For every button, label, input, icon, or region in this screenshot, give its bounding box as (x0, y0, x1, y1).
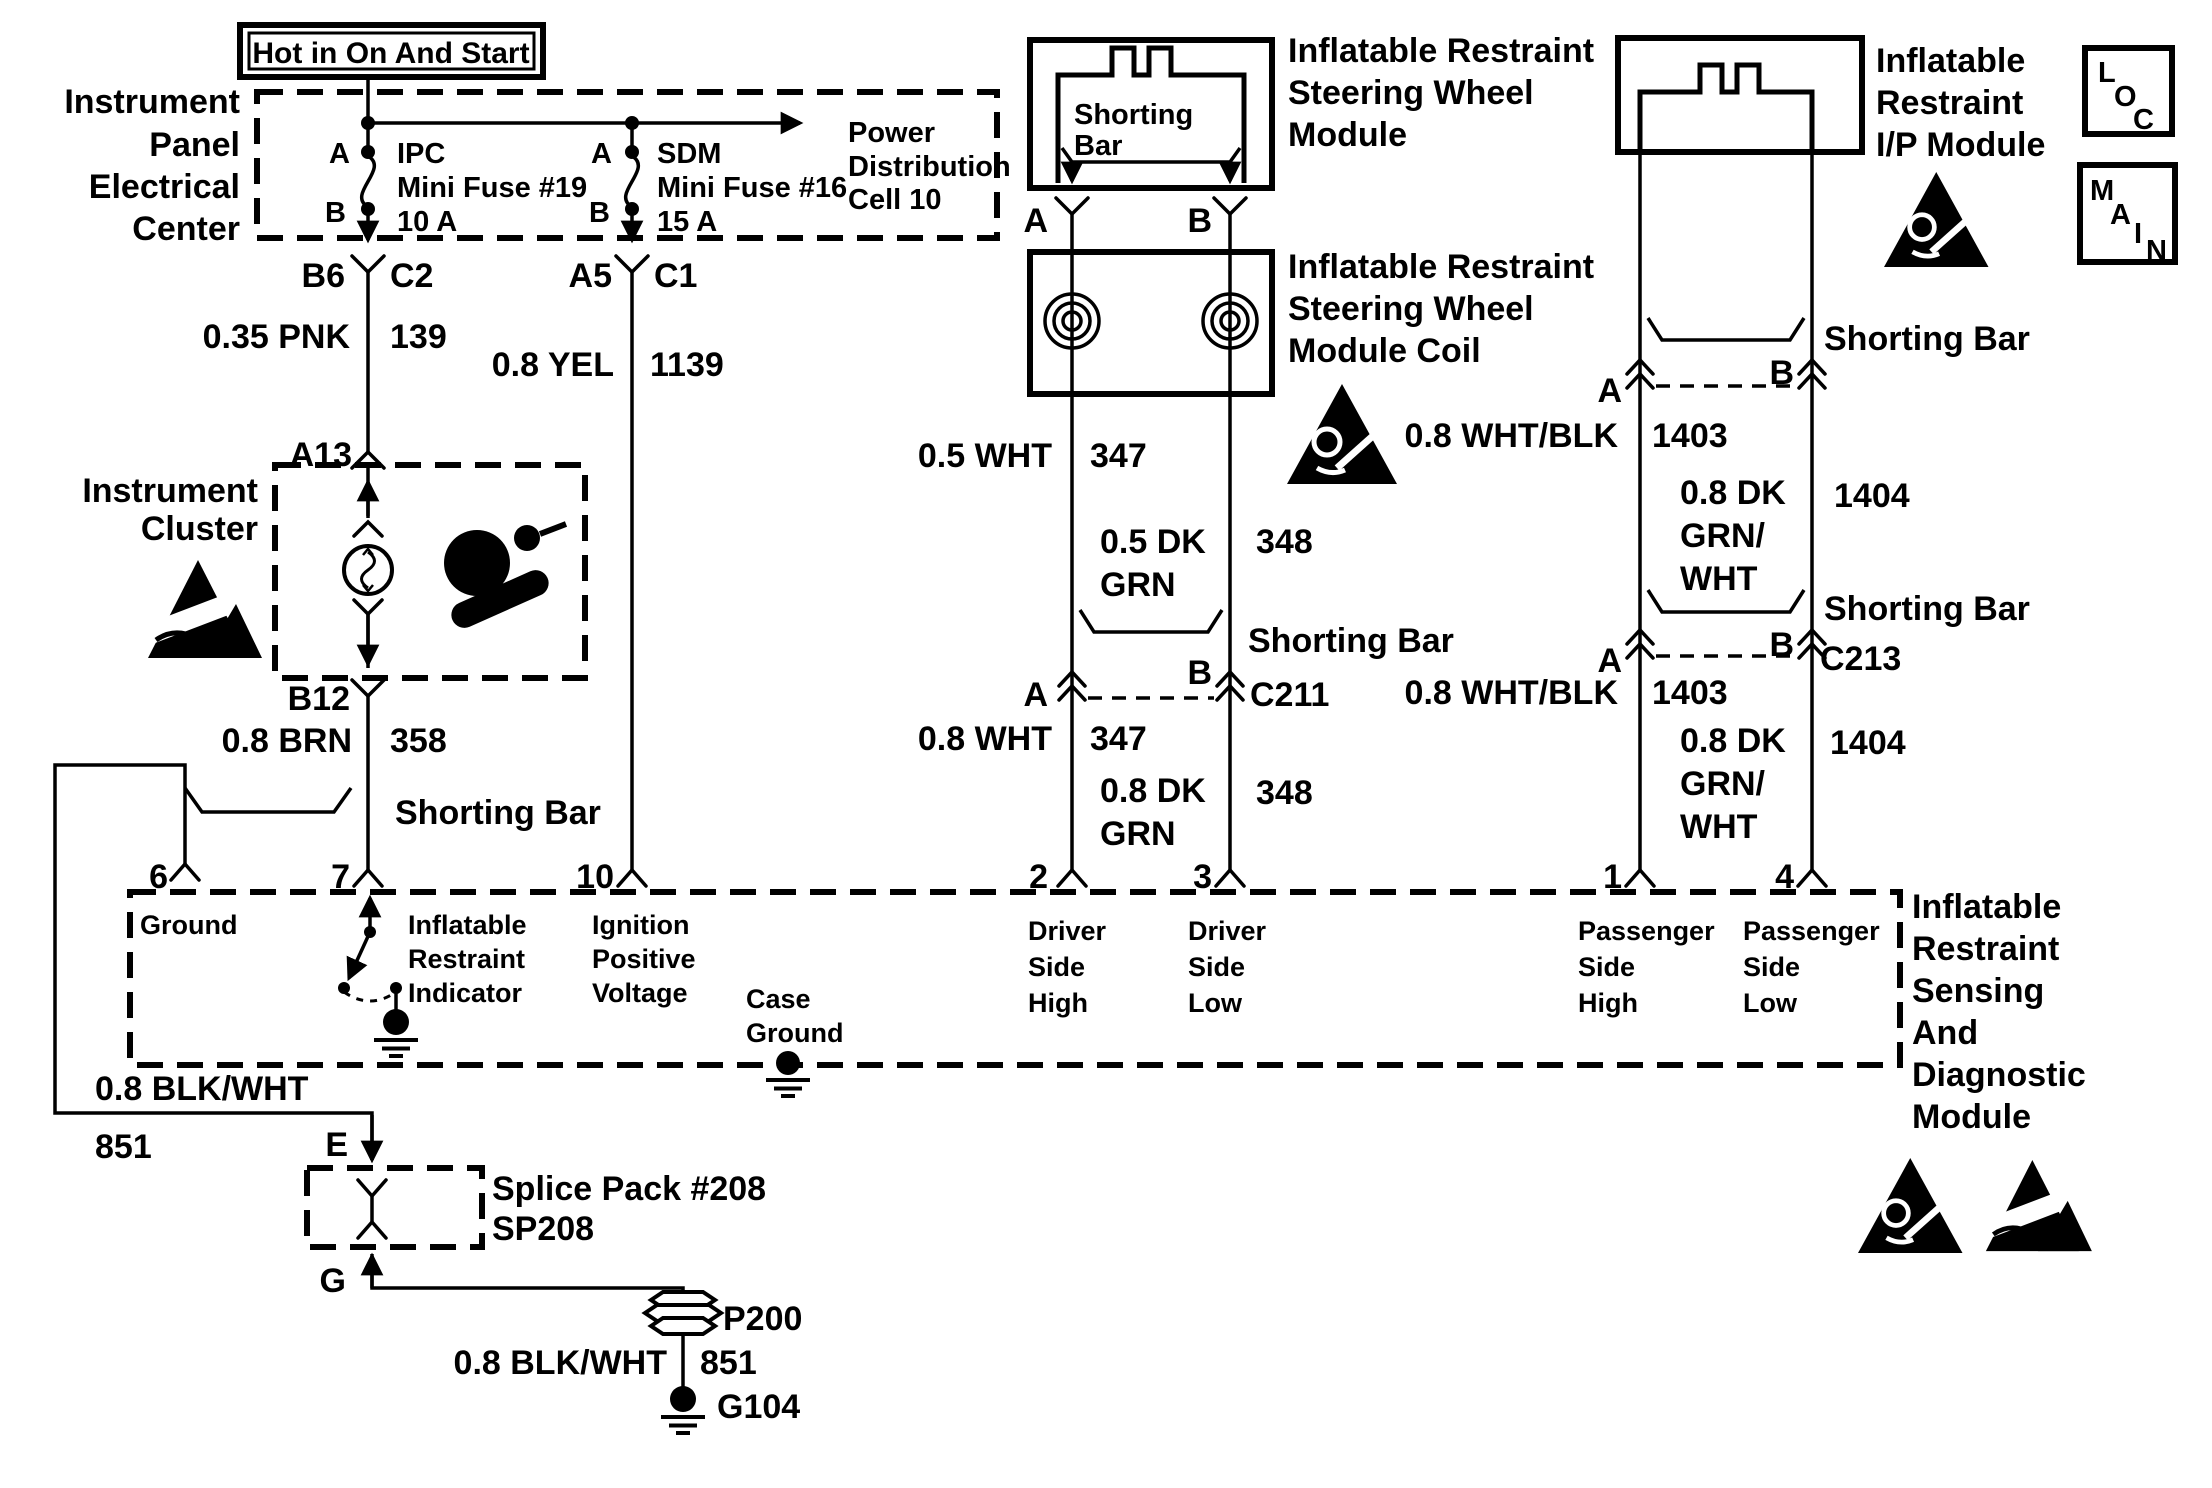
ground-branch: 0.8 BLK/WHT 851 E (95, 1070, 372, 1166)
connector-pin-label: A5 (569, 257, 612, 295)
connector-pin-label: B6 (302, 257, 345, 295)
wire-gauge: 0.8 BLK/WHT (95, 1070, 309, 1108)
pin-number: 3 (1193, 858, 1212, 896)
wire-label-yel-1139: 0.8 YEL 1139 (492, 346, 724, 384)
swm-pin-b: B (1187, 202, 1212, 240)
sdm-fn-driver-low-line: Low (1188, 988, 1243, 1018)
splice-pin-e: E (325, 1126, 348, 1164)
wire-circuit: 348 (1256, 774, 1313, 812)
sdm-fn-ground: Ground (140, 910, 237, 940)
wire-gauge-line: 0.8 DK (1680, 722, 1786, 760)
wire-gauge: 0.8 WHT/BLK (1405, 417, 1619, 455)
shorting-bar-middle: Shorting Bar (1080, 610, 1454, 660)
sdm-fn-driver-low-line: Driver (1188, 916, 1267, 946)
connector-a13-label: A13 (290, 436, 352, 474)
fuse-pin-b: B (325, 197, 346, 229)
indicator-lamp-symbol (344, 546, 392, 594)
p200-grommet: P200 (645, 1292, 802, 1338)
g104-ground: G104 (661, 1386, 800, 1433)
wire-gauge-line: 0.8 DK (1680, 474, 1786, 512)
fuse-desc: Mini Fuse #19 (397, 172, 587, 204)
fuse-desc: Mini Fuse #16 (657, 172, 847, 204)
p200-label: P200 (723, 1300, 802, 1338)
wire-gauge-line: GRN/ (1680, 517, 1766, 555)
fuse-rating: 10 A (397, 206, 457, 238)
wire-circuit: 347 (1090, 720, 1147, 758)
main-letter: N (2146, 235, 2167, 267)
instrument-cluster: A13 Instrument Cluster (82, 436, 585, 678)
loc-letter: C (2133, 104, 2154, 136)
shorting-bar-label: Shorting Bar (1824, 590, 2030, 628)
power-dist-line: Cell 10 (848, 184, 942, 216)
wire-label-whtblk-1403-upper: 0.8 WHT/BLK 1403 (1405, 417, 1728, 455)
sdm-fn-pass-low-line: Passenger (1743, 916, 1880, 946)
cluster-name-line: Instrument (82, 472, 258, 510)
sdm-fn-pass-low-line: Low (1743, 988, 1798, 1018)
fuse-rating: 15 A (657, 206, 717, 238)
fuse-element (626, 156, 639, 207)
shorting-bar-label: Shorting Bar (395, 794, 601, 832)
loc-reference-box: L O C (2085, 48, 2172, 136)
steering-wheel-module: Shorting Bar Inflatable Restraint Steeri… (1023, 32, 1594, 240)
pin-number: 6 (149, 858, 168, 896)
hot-in-on-and-start-box: Hot in On And Start (240, 25, 543, 77)
sdm-fn-driver-low-line: Side (1188, 952, 1245, 982)
coil-name-line: Inflatable Restraint (1288, 248, 1594, 286)
wire-circuit: 139 (390, 318, 447, 356)
connector-label: C2 (390, 257, 433, 295)
esd-warning-icon (142, 560, 262, 658)
wire-circuit: 1139 (650, 346, 724, 384)
airbag-icon (444, 524, 566, 632)
fuse-pin-a: A (591, 138, 612, 170)
sdm-fn-ignition-line: Ignition (592, 910, 689, 940)
ipm-name-line: I/P Module (1876, 126, 2045, 164)
ipec-name-line: Center (132, 210, 240, 248)
hot-box-label: Hot in On And Start (252, 37, 529, 70)
fuse-pin-a: A (329, 138, 350, 170)
splice-name: Splice Pack #208 (492, 1170, 766, 1208)
connector-pin-a: A (1023, 676, 1048, 714)
connector-pin-a: A (1597, 372, 1622, 410)
sdm-fn-driver-high-line: High (1028, 988, 1088, 1018)
airbag-wiring-diagram: Hot in On And Start Instrument Panel Ele… (0, 0, 2212, 1488)
connector-pin-b: B (1769, 626, 1794, 664)
ipm-name-line: Inflatable (1876, 42, 2025, 80)
sdm-fn-indicator-line: Restraint (408, 944, 525, 974)
wire-gauge-line: 0.5 DK (1100, 523, 1206, 561)
sdm-fn-indicator-line: Inflatable (408, 910, 527, 940)
sdm-fn-pass-high-line: High (1578, 988, 1638, 1018)
splice-id: SP208 (492, 1210, 594, 1248)
connector-label: C1 (654, 257, 697, 295)
cluster-name-line: Cluster (141, 510, 258, 548)
wire-label-dkgrn-348-lower: 0.8 DK GRN 348 (1100, 772, 1313, 853)
wire-circuit: 851 (700, 1344, 757, 1382)
wire-gauge: 0.5 WHT (918, 437, 1052, 475)
wire-gauge: 0.35 PNK (203, 318, 351, 356)
sdm-fn-driver-high-line: Side (1028, 952, 1085, 982)
esd-warning-icon (1980, 1160, 2092, 1251)
ipec-name-line: Instrument (64, 83, 240, 121)
wire-label-dkgrnwht-1404-lower: 0.8 DK GRN/ WHT 1404 (1680, 722, 1906, 846)
coil-name-line: Module Coil (1288, 332, 1481, 370)
sdm-fn-ignition-line: Voltage (592, 978, 688, 1008)
pin-number: 10 (576, 858, 614, 896)
sdm-name-line: Diagnostic (1912, 1056, 2086, 1094)
airbag-warning-triangle-icon (1884, 172, 1989, 267)
shorting-bar-label: Shorting Bar (1248, 622, 1454, 660)
sdm-name-line: Sensing (1912, 972, 2044, 1010)
splice-pack-208: Splice Pack #208 SP208 G (307, 1168, 766, 1300)
fuse-pin-b: B (589, 197, 610, 229)
wire-gauge: 0.8 WHT/BLK (1405, 674, 1619, 712)
ipec-name-line: Panel (149, 126, 240, 164)
sdm-name-line: And (1912, 1014, 1978, 1052)
fuse-name: SDM (657, 138, 721, 170)
pin-number: 2 (1029, 858, 1048, 896)
fuse-name: IPC (397, 138, 445, 170)
sdm-name-line: Inflatable (1912, 888, 2061, 926)
swm-pin-a: A (1023, 202, 1048, 240)
sdm-name-line: Restraint (1912, 930, 2059, 968)
pin-number: 7 (331, 858, 350, 896)
sdm-fn-ignition-line: Positive (592, 944, 696, 974)
swm-name-line: Steering Wheel (1288, 74, 1534, 112)
indicator-driver-symbol (338, 898, 418, 1056)
sdm-name-line: Module (1912, 1098, 2031, 1136)
wire-gauge: 0.8 YEL (492, 346, 614, 384)
swm-name-line: Inflatable Restraint (1288, 32, 1594, 70)
sdm-fn-pass-high-line: Side (1578, 952, 1635, 982)
wire-gauge-line: GRN (1100, 566, 1176, 604)
case-ground-symbol (766, 1051, 810, 1096)
swm-inner-label: Shorting (1074, 99, 1193, 131)
sdm-fn-case-ground-line: Ground (746, 1018, 843, 1048)
fuse-element (362, 156, 375, 207)
main-letter: A (2110, 199, 2131, 231)
power-dist-line: Power (848, 117, 935, 149)
airbag-warning-triangle-icon (1287, 384, 1397, 484)
wire-gauge-line: WHT (1680, 560, 1758, 598)
connector-ip-inline: A B (1597, 354, 1825, 410)
ipm-name-line: Restraint (1876, 84, 2023, 122)
wire-circuit: 347 (1090, 437, 1147, 475)
sdm-fn-pass-high-line: Passenger (1578, 916, 1715, 946)
wire-gauge: 0.8 BLK/WHT (454, 1344, 668, 1382)
sdm-fn-pass-low-line: Side (1743, 952, 1800, 982)
sdm-fn-indicator-line: Indicator (408, 978, 523, 1008)
airbag-warning-triangle-icon (1858, 1158, 1963, 1253)
connector-name: C211 (1250, 676, 1329, 714)
connector-c211: A B C211 (1023, 654, 1329, 714)
wire-label-whtblk-1403-lower: 0.8 WHT/BLK 1403 (1405, 674, 1728, 712)
ip-module: Inflatable Restraint I/P Module (1618, 38, 2045, 267)
wire-circuit: 358 (390, 722, 447, 760)
wire-circuit: 851 (95, 1128, 152, 1166)
wire-gauge-line: WHT (1680, 808, 1758, 846)
wire-gauge: 0.8 BRN (222, 722, 352, 760)
swm-inner-label: Bar (1074, 130, 1122, 162)
wire-circuit: 1404 (1830, 724, 1906, 762)
sdm-fn-case-ground-line: Case (746, 984, 811, 1014)
connector-label: B12 (288, 680, 350, 718)
wire-gauge-line: GRN/ (1680, 765, 1766, 803)
swm-name-line: Module (1288, 116, 1407, 154)
wiring-diagram-page: Hot in On And Start Instrument Panel Ele… (0, 0, 2212, 1488)
shorting-bar-left: Shorting Bar (185, 788, 601, 832)
sdm-module: 6 7 10 2 3 1 4 Ground Inflatable Restra (130, 858, 2092, 1253)
instrument-panel-electrical-center: Instrument Panel Electrical Center Power… (64, 83, 1010, 248)
power-dist-line: Distribution (848, 151, 1011, 183)
wire-circuit: 348 (1256, 523, 1313, 561)
connector-c213: A B C213 (1597, 626, 1901, 680)
wire-label-blkwht-851-bottom: 0.8 BLK/WHT 851 (454, 1344, 757, 1382)
splice-pin-g: G (320, 1262, 346, 1300)
wire-circuit: 1403 (1652, 417, 1728, 455)
ipec-name-line: Electrical (89, 168, 240, 206)
shorting-bar-label: Shorting Bar (1824, 320, 2030, 358)
main-reference-box: M A I N (2080, 165, 2175, 267)
wire-gauge-line: 0.8 DK (1100, 772, 1206, 810)
wire-label-wht-347-lower: 0.8 WHT 347 (918, 720, 1147, 758)
wire-label-dkgrnwht-1404-upper: 0.8 DK GRN/ WHT 1404 (1680, 474, 1910, 598)
pin-number: 4 (1775, 858, 1794, 896)
pin-number: 1 (1603, 858, 1622, 896)
wire-label-wht-347-upper: 0.5 WHT 347 (918, 437, 1147, 475)
wire-gauge: 0.8 WHT (918, 720, 1052, 758)
connector-name: C213 (1820, 640, 1901, 678)
connector-pin-b: B (1187, 654, 1212, 692)
g104-label: G104 (717, 1388, 800, 1426)
wire-circuit: 1404 (1834, 477, 1910, 515)
connector-pin-b: B (1769, 354, 1794, 392)
coil-name-line: Steering Wheel (1288, 290, 1534, 328)
main-letter: I (2134, 218, 2142, 250)
shorting-bar-right-upper: Shorting Bar (1648, 318, 2030, 358)
wire-gauge-line: GRN (1100, 815, 1176, 853)
wire-label-dkgrn-348-upper: 0.5 DK GRN 348 (1100, 523, 1313, 604)
wire-circuit: 1403 (1652, 674, 1728, 712)
sdm-fn-driver-high-line: Driver (1028, 916, 1107, 946)
wire-label-pnk-139: 0.35 PNK 139 (203, 318, 447, 356)
wire-label-brn-358: 0.8 BRN 358 (222, 722, 447, 760)
